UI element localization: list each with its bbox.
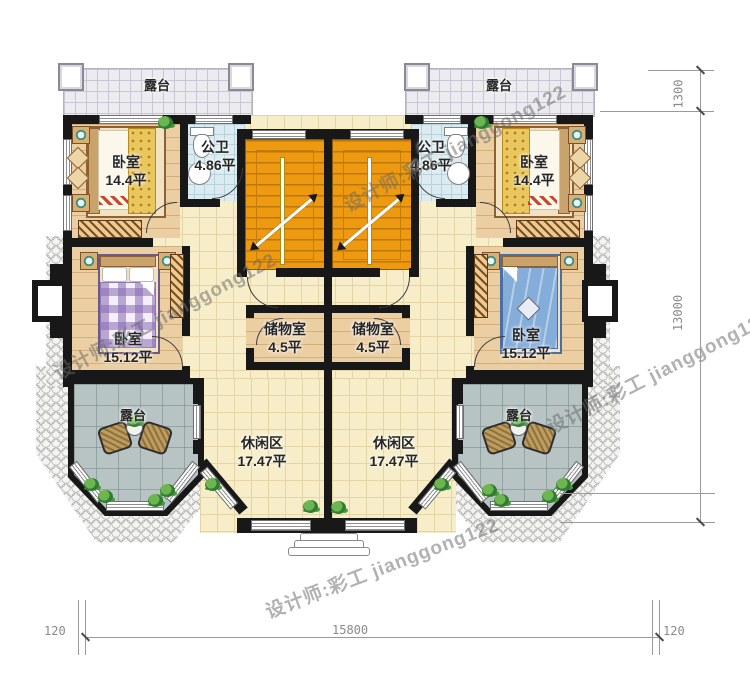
wall-center <box>324 129 332 525</box>
window <box>457 406 463 438</box>
plant <box>434 478 449 491</box>
nightstand <box>80 252 98 270</box>
window <box>252 521 310 530</box>
wall <box>466 370 593 379</box>
wardrobe <box>474 254 488 318</box>
plant <box>98 490 113 503</box>
plant <box>556 478 571 491</box>
dim-total-depth: 13000 <box>671 295 685 331</box>
extension-line <box>560 493 715 494</box>
wall <box>456 379 463 404</box>
pillar <box>404 63 430 91</box>
terrace-bottom-left <box>68 378 204 516</box>
plant <box>205 478 220 491</box>
wall <box>503 238 593 247</box>
plant <box>494 494 509 507</box>
window <box>196 116 232 123</box>
wall <box>324 268 380 277</box>
stair-rail <box>281 158 284 264</box>
plant <box>148 494 163 507</box>
room-label-leisure-left: 休闲区17.47平 <box>202 434 322 470</box>
pillar <box>58 63 84 91</box>
window <box>194 406 200 438</box>
room-label-bath-left: 公卫4.86平 <box>180 138 250 174</box>
plant <box>482 484 497 497</box>
dimension-line-horizontal <box>85 637 660 638</box>
plant <box>542 490 557 503</box>
wall <box>332 362 410 370</box>
wall <box>50 320 66 338</box>
wall <box>193 440 200 454</box>
room-label-leisure-right: 休闲区17.47平 <box>334 434 454 470</box>
plant <box>160 484 175 497</box>
plant <box>303 500 318 513</box>
room-label-storage-left: 储物室4.5平 <box>245 320 325 356</box>
wardrobe <box>516 220 580 238</box>
dim-total-width: 15800 <box>332 623 368 637</box>
pillar <box>572 63 598 91</box>
wall <box>246 362 324 370</box>
bay-window-left <box>32 280 68 322</box>
wall <box>193 379 200 404</box>
room-label-bedroom-top-right: 卧室14.4平 <box>474 153 594 189</box>
entry-steps <box>288 547 370 556</box>
window <box>64 196 71 230</box>
wall <box>180 199 220 207</box>
nightstand <box>560 252 578 270</box>
nightstand <box>72 194 90 212</box>
pillow <box>102 267 127 282</box>
stair-rail <box>368 158 371 264</box>
nightstand <box>568 194 586 212</box>
extension-line <box>600 111 714 112</box>
floor-plan: 露台 露台 卧室14.4平 卧室14.4平 公卫4.86平 公卫4.86平 卧室… <box>0 0 750 695</box>
pillar <box>228 63 254 91</box>
room-label-terrace-top-left: 露台 <box>107 78 207 95</box>
extension-line <box>560 522 715 523</box>
terrace-bottom-right <box>452 378 588 516</box>
extension-line <box>648 70 714 71</box>
wall <box>590 320 606 338</box>
bed-blanket-trim <box>99 196 128 205</box>
room-label-bedroom-bottom-right: 卧室15.12平 <box>466 326 586 362</box>
wardrobe <box>78 220 142 238</box>
bay-window-right <box>582 280 618 322</box>
wall <box>246 305 324 313</box>
wall <box>332 305 410 313</box>
window <box>585 196 592 230</box>
window <box>253 131 305 138</box>
room-label-bedroom-top-left: 卧室14.4平 <box>66 153 186 189</box>
window <box>100 116 162 123</box>
window <box>346 521 404 530</box>
bed-blanket-trim <box>528 196 557 205</box>
dim-wall-right: 120 <box>663 624 685 638</box>
bed-headboard <box>100 256 156 267</box>
dim-wall-left: 120 <box>44 624 66 638</box>
nightstand <box>568 126 586 144</box>
plant <box>331 501 346 514</box>
wall <box>63 238 153 247</box>
dimension-line-vertical <box>700 70 701 523</box>
room-label-storage-right: 储物室4.5平 <box>333 320 413 356</box>
wall <box>436 199 476 207</box>
nightstand <box>72 126 90 144</box>
bed-headboard <box>502 256 558 267</box>
extension-line <box>659 600 660 655</box>
window <box>351 131 403 138</box>
dim-terrace-depth: 1300 <box>671 80 685 109</box>
wall <box>466 246 474 336</box>
wall <box>246 305 254 318</box>
window <box>424 116 460 123</box>
extension-line <box>78 600 79 655</box>
wall <box>456 440 463 454</box>
plant <box>158 116 173 129</box>
extension-line <box>85 600 86 655</box>
room-label-terrace-bottom-left: 露台 <box>83 408 183 425</box>
pillow <box>129 267 154 282</box>
wall <box>402 305 410 318</box>
extension-line <box>652 600 653 655</box>
plant <box>84 478 99 491</box>
wall <box>409 268 419 277</box>
